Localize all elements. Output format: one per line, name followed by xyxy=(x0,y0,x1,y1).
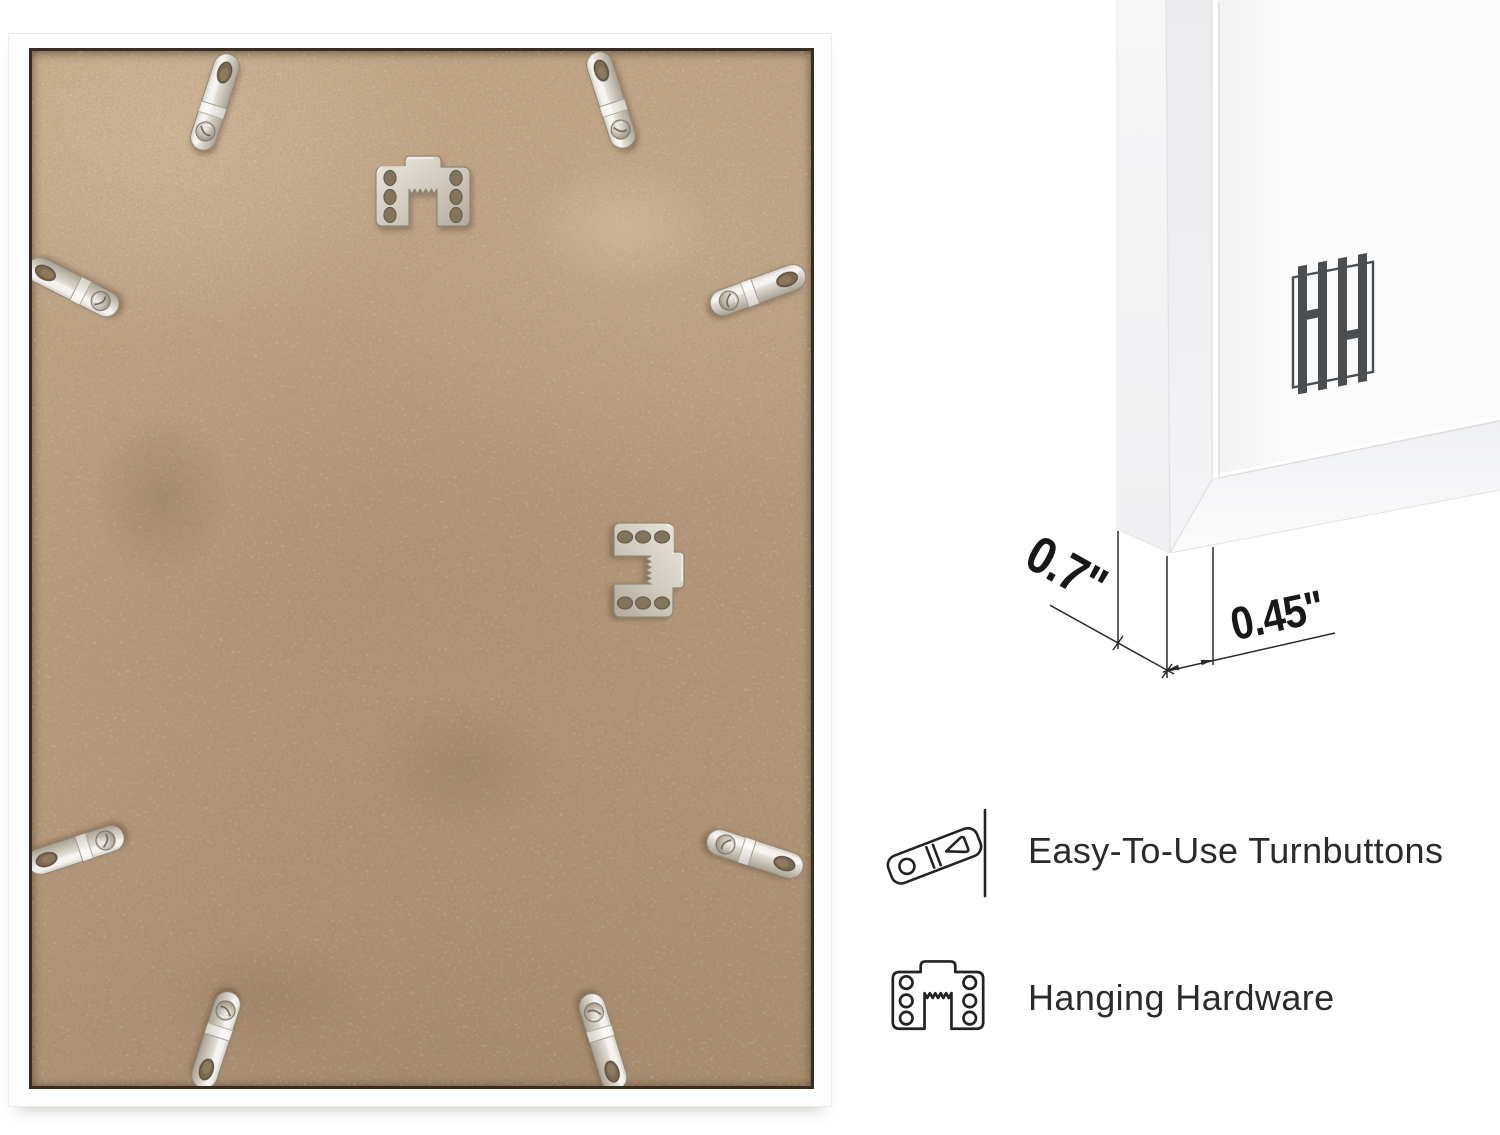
mdf-backboard xyxy=(29,48,814,1089)
frame-side-surface xyxy=(1117,0,1170,553)
turnbutton-top-left xyxy=(181,48,250,158)
board-stain xyxy=(152,931,372,1061)
turnbutton-bottom-right xyxy=(569,986,636,1089)
turnbutton-right-upper xyxy=(702,254,814,326)
feature-label-turnbuttons: Easy-To-Use Turnbuttons xyxy=(1028,830,1443,872)
brand-logo-hh-icon xyxy=(1290,252,1378,394)
turnbutton-line-icon xyxy=(884,806,996,900)
turnbutton-top-right xyxy=(577,48,646,156)
board-stain xyxy=(92,411,232,581)
turnbutton-bottom-left xyxy=(182,984,251,1089)
board-stain xyxy=(532,161,712,291)
sawtooth-hanger-top xyxy=(371,153,475,231)
turnbutton-right-lower xyxy=(699,820,812,889)
frame-back-photo xyxy=(8,33,832,1107)
feature-label-hanging-hardware: Hanging Hardware xyxy=(1028,977,1335,1019)
board-stain xyxy=(362,691,562,841)
mat-surface xyxy=(1215,0,1500,477)
sawtooth-hanger-middle xyxy=(609,518,687,622)
product-listing-image: 0.7" 0.45" xyxy=(0,0,1500,1135)
frame-face-left-rail xyxy=(1166,0,1213,553)
hanging-hardware-line-icon xyxy=(888,953,988,1041)
turnbutton-left-upper xyxy=(29,246,129,328)
turnbutton-left-lower xyxy=(29,816,132,885)
